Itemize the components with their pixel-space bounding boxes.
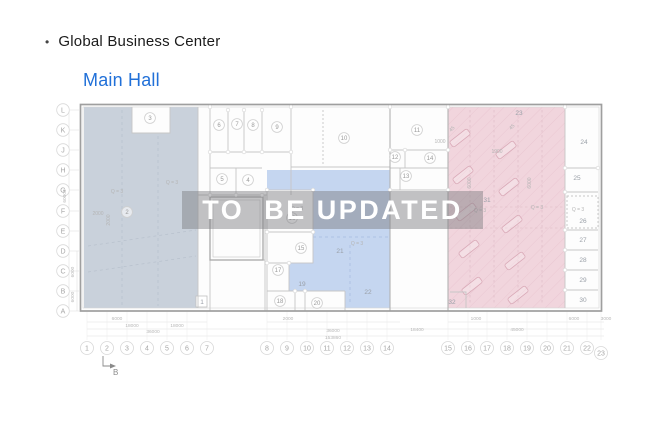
room-number: 10 <box>341 136 348 142</box>
col-grid-label: 5 <box>165 346 169 353</box>
room-number: 23 <box>515 110 523 117</box>
col-grid-label: 14 <box>383 346 391 353</box>
row-grid-label: L <box>61 108 65 115</box>
room-number: 18 <box>277 299 284 305</box>
room-number: 11 <box>414 128 421 134</box>
dimension-label: 45000 <box>510 327 524 333</box>
col-grid-label: 7 <box>205 346 209 353</box>
dimension-label: 6000 <box>70 291 76 302</box>
col-grid-label: 15 <box>444 346 452 353</box>
plan-annotation: 2000 <box>106 214 112 225</box>
section-marker-label: B <box>113 368 118 377</box>
col-grid-label: 13 <box>363 346 371 353</box>
row-grid-label: A <box>61 309 66 316</box>
page: • Global Business Center Main Hall <box>0 0 660 440</box>
col-grid-label: 16 <box>464 346 472 353</box>
col-grid-label: 9 <box>285 346 289 353</box>
col-grid-label: 11 <box>323 346 330 353</box>
room-number: 25 <box>573 175 581 182</box>
room-number: 1 <box>200 299 204 306</box>
room-number: 14 <box>427 156 434 162</box>
room-number: 20 <box>314 301 321 307</box>
plan-annotation: Q = 3 <box>572 207 585 213</box>
dimension-label: 1000 <box>471 316 482 322</box>
room-number: 22 <box>364 289 372 296</box>
plan-annotation: 6000 <box>467 177 473 188</box>
row-grid-label: B <box>61 289 66 296</box>
watermark-text: TO BE UPDATED <box>202 197 463 224</box>
room-number: 17 <box>275 268 282 274</box>
col-grid-label: 20 <box>543 346 551 353</box>
plan-annotation: Q = 3 <box>111 189 124 195</box>
col-grid-label: 18 <box>503 346 511 353</box>
plan-annotation: Q = 3 <box>531 205 544 211</box>
col-grid-label: 10 <box>303 346 311 353</box>
col-grid-label: 1 <box>85 346 89 353</box>
room-number: 15 <box>298 246 305 252</box>
dimension-label: 60000 <box>62 189 68 203</box>
room-number: 29 <box>579 277 587 284</box>
row-grid-label: C <box>60 269 65 276</box>
col-grid-label: 8 <box>265 346 269 353</box>
plan-annotation: Q = 3 <box>351 241 364 247</box>
plan-annotation: 1000 <box>434 139 445 145</box>
dimension-label: 18400 <box>410 327 424 333</box>
dimension-label: 18000 <box>125 323 139 329</box>
row-grid-label: D <box>60 249 65 256</box>
col-grid-label: 12 <box>343 346 351 353</box>
room-number: 24 <box>580 139 588 146</box>
room-number: 21 <box>336 248 344 255</box>
plan-annotation: 2000 <box>92 211 103 217</box>
col-grid-label: 22 <box>583 346 591 353</box>
dimension-label: 6000 <box>569 316 580 322</box>
room-number: 28 <box>579 257 587 264</box>
plan-annotation: 1900 <box>491 149 502 155</box>
dimension-label: 2000 <box>283 316 294 322</box>
watermark-band: TO BE UPDATED <box>182 191 483 229</box>
dimension-label: 36000 <box>326 328 340 334</box>
room-number: 31 <box>483 197 491 204</box>
plan-annotation: Q = 3 <box>166 180 179 186</box>
col-grid-label: 19 <box>523 346 531 353</box>
col-grid-label: 17 <box>483 346 491 353</box>
dimension-label: 153860 <box>325 335 341 341</box>
row-grid-label: F <box>61 209 65 216</box>
col-grid-label: 21 <box>563 346 571 353</box>
col-grid-label: 2 <box>105 346 109 353</box>
row-grid-label: J <box>61 148 65 155</box>
dimension-label: 3000 <box>601 316 612 322</box>
room-number: 19 <box>298 281 306 288</box>
room-number: 13 <box>403 174 410 180</box>
room-number: 26 <box>579 218 587 225</box>
room-number: 27 <box>579 237 587 244</box>
dimension-label: 18000 <box>170 323 184 329</box>
dimension-label: 6000 <box>112 316 123 322</box>
col-grid-label: 4 <box>145 346 149 353</box>
room-number: 12 <box>392 155 399 161</box>
dimension-label: 6000 <box>70 266 76 277</box>
col-axis: 1234567891011121314151617181920212223 <box>81 342 608 360</box>
section-marker: B <box>103 356 118 377</box>
col-grid-label: 6 <box>185 346 189 353</box>
col-grid-label: 3 <box>125 346 129 353</box>
col-grid-label: 23 <box>597 351 605 358</box>
room-number: 32 <box>448 299 456 306</box>
row-grid-label: E <box>61 229 66 236</box>
plan-annotation: 6000 <box>527 177 533 188</box>
row-grid-label: H <box>60 168 65 175</box>
row-grid-label: K <box>61 128 66 135</box>
row-axis: LKJHGFEDCBA <box>57 104 79 318</box>
dimension-label: 36000 <box>146 329 160 335</box>
room-number: 30 <box>579 297 587 304</box>
